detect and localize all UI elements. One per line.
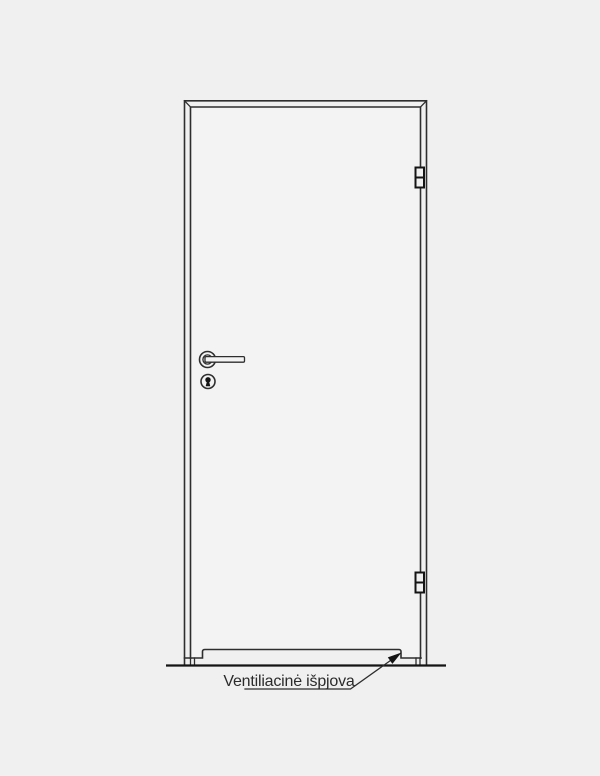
door-technical-drawing: Ventiliacinė išpjova [0,0,600,776]
arrowhead-icon [388,653,402,664]
hinge-bottom-icon [416,573,425,593]
keyhole-icon [201,375,215,389]
miter-joint-top-left-icon [185,101,191,107]
door-leaf-panel [191,107,421,658]
miter-joint-top-right-icon [421,101,427,107]
hinge-top-icon [416,168,425,188]
drawing-canvas: Ventiliacinė išpjova [0,0,600,776]
ventilation-cutout-line [185,650,422,659]
ventilation-label: Ventiliacinė išpjova [223,673,354,690]
handle-lever [205,357,245,363]
